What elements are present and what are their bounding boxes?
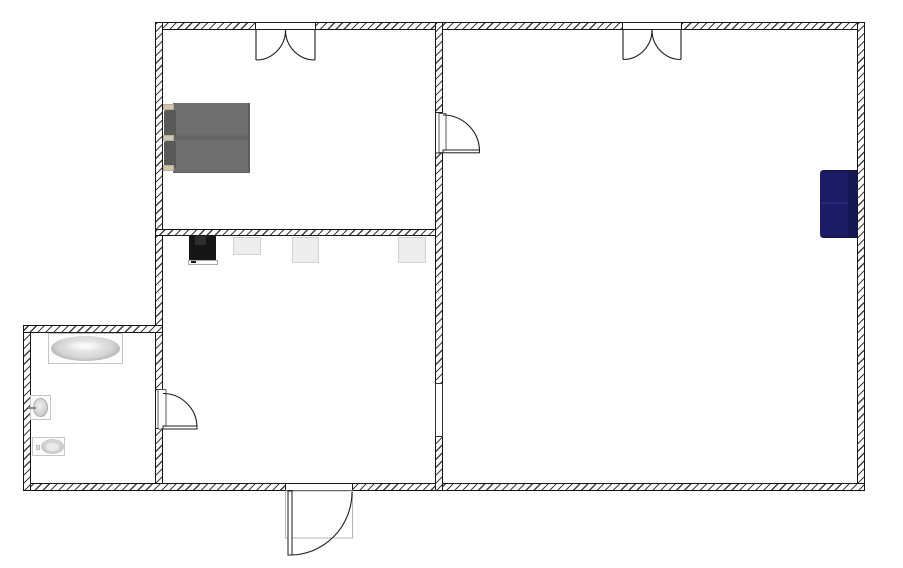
toilet-bowl-inner <box>46 443 59 451</box>
bathtub-highlight <box>65 341 103 351</box>
wall-bathroom-top <box>23 325 163 333</box>
sink[interactable] <box>30 395 51 420</box>
stove-burner <box>195 236 206 245</box>
room-kitchen-living <box>163 236 435 483</box>
front-door[interactable] <box>285 483 353 558</box>
toilet-flush-button <box>36 445 40 450</box>
double-bed[interactable] <box>163 103 248 172</box>
bed-pillow <box>164 110 176 137</box>
bed-headboard-trim <box>163 165 174 171</box>
stove-handle <box>191 261 196 263</box>
floor-plan-canvas <box>0 0 903 568</box>
bedroom-double-door[interactable] <box>255 22 316 62</box>
main-room-double-door[interactable] <box>622 22 682 60</box>
wall-bottom <box>23 483 865 491</box>
stove[interactable] <box>188 235 218 265</box>
wall-right <box>857 22 865 491</box>
bathtub[interactable] <box>48 333 123 364</box>
counter-2[interactable] <box>292 237 319 263</box>
sofa[interactable] <box>820 170 858 238</box>
sink-faucet <box>28 407 36 409</box>
sofa-backrest <box>848 170 858 238</box>
bed-mattress <box>173 103 250 173</box>
interior-door[interactable] <box>435 112 480 154</box>
counter-3[interactable] <box>398 237 426 263</box>
toilet[interactable] <box>32 437 65 456</box>
counter-1[interactable] <box>233 237 261 255</box>
room-main <box>443 30 857 483</box>
sofa-armrest-bottom <box>820 235 848 238</box>
bed-pillow <box>164 141 176 168</box>
divider-wall-opening[interactable] <box>435 383 443 437</box>
bathroom-door[interactable] <box>155 389 198 430</box>
sofa-armrest-top <box>820 170 848 173</box>
sofa-cushion-seam <box>822 202 848 204</box>
